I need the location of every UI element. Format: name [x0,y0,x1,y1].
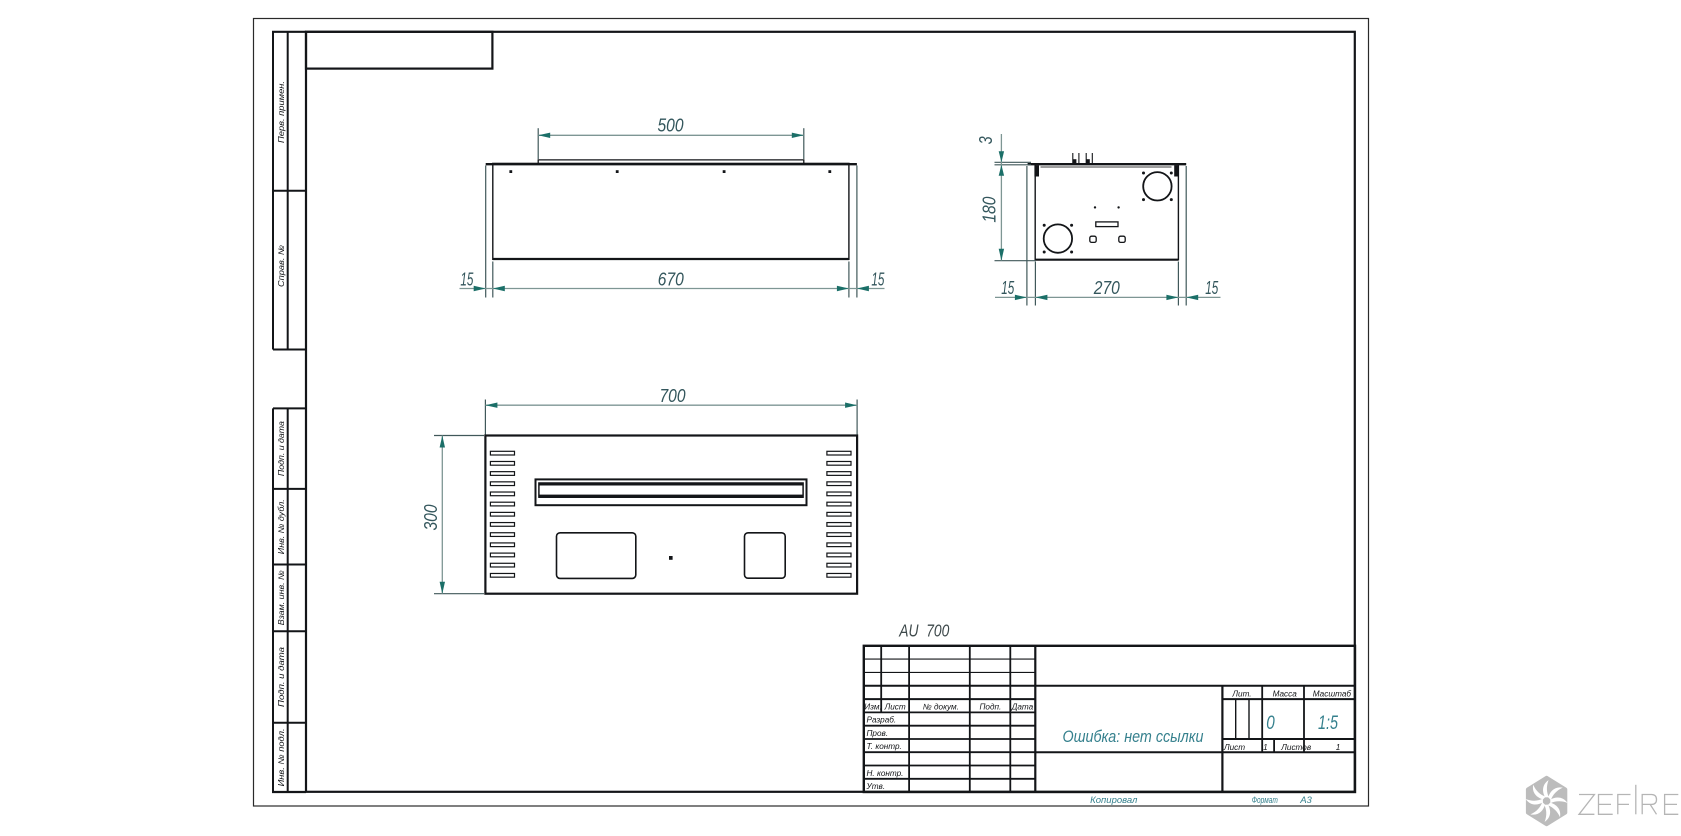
svg-text:Утв.: Утв. [866,782,886,791]
svg-text:Лист: Лист [1223,743,1245,752]
svg-text:Пров.: Пров. [867,729,889,738]
svg-text:15: 15 [1001,278,1015,298]
svg-text:Т. контр.: Т. контр. [867,742,902,751]
svg-text:Масса: Масса [1273,690,1298,699]
svg-text:Справ. №: Справ. № [277,245,286,287]
svg-text:AU 700: AU 700 [899,621,950,641]
svg-text:500: 500 [658,116,684,136]
svg-text:Изм.: Изм. [864,702,881,711]
svg-text:180: 180 [980,197,1000,223]
svg-text:Перв. примен.: Перв. примен. [277,81,286,143]
svg-text:Взам. инв. №: Взам. инв. № [277,570,286,625]
svg-text:1: 1 [1336,743,1341,752]
svg-text:3: 3 [976,136,996,144]
svg-text:Копировал: Копировал [1090,795,1138,806]
svg-text:15: 15 [1205,278,1219,298]
svg-text:Инв. № дубл.: Инв. № дубл. [277,499,286,554]
svg-text:Масштаб: Масштаб [1313,690,1352,699]
svg-text:Лист: Лист [884,702,906,711]
svg-text:670: 670 [658,269,684,289]
svg-text:270: 270 [1093,278,1120,298]
svg-text:№ докум.: № докум. [923,702,959,711]
svg-text:Подп.: Подп. [980,702,1002,711]
svg-text:1:5: 1:5 [1318,713,1338,734]
svg-text:Подп. и дата: Подп. и дата [277,421,286,476]
svg-text:0: 0 [1266,713,1275,734]
svg-text:Листов: Листов [1280,743,1312,752]
svg-text:Разраб.: Разраб. [867,716,897,725]
svg-text:Ошибка: нет ссылки: Ошибка: нет ссылки [1063,728,1204,746]
svg-text:15: 15 [460,269,474,289]
svg-text:300: 300 [421,505,441,531]
svg-text:Формат: Формат [1252,795,1278,806]
svg-text:А3: А3 [1299,795,1312,806]
svg-text:Н. контр.: Н. контр. [867,769,904,778]
svg-text:Инв. № подл.: Инв. № подл. [277,728,286,786]
svg-text:700: 700 [660,386,686,406]
svg-text:Подп. и дата: Подп. и дата [277,646,286,707]
svg-text:Дата: Дата [1011,702,1034,711]
svg-text:15: 15 [871,269,885,289]
svg-text:1: 1 [1263,743,1268,752]
svg-text:Лит.: Лит. [1231,690,1251,699]
